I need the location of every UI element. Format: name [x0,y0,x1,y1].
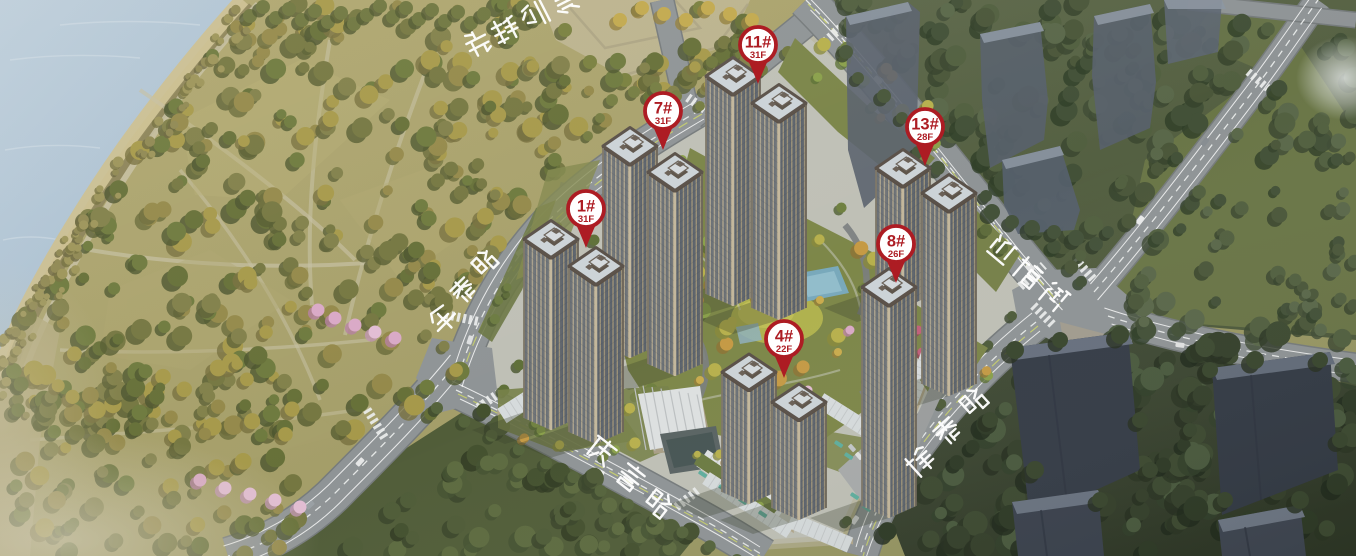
svg-text:11#: 11# [745,34,772,52]
svg-text:13#: 13# [911,116,939,134]
svg-text:1#: 1# [577,198,595,216]
svg-text:8#: 8# [887,233,905,251]
svg-text:31F: 31F [750,50,767,61]
svg-text:28F: 28F [917,132,934,143]
svg-text:31F: 31F [578,214,595,225]
svg-text:22F: 22F [776,344,793,355]
svg-text:4#: 4# [775,328,793,346]
svg-text:26F: 26F [888,249,905,260]
svg-text:31F: 31F [655,116,672,127]
svg-text:7#: 7# [654,100,672,118]
